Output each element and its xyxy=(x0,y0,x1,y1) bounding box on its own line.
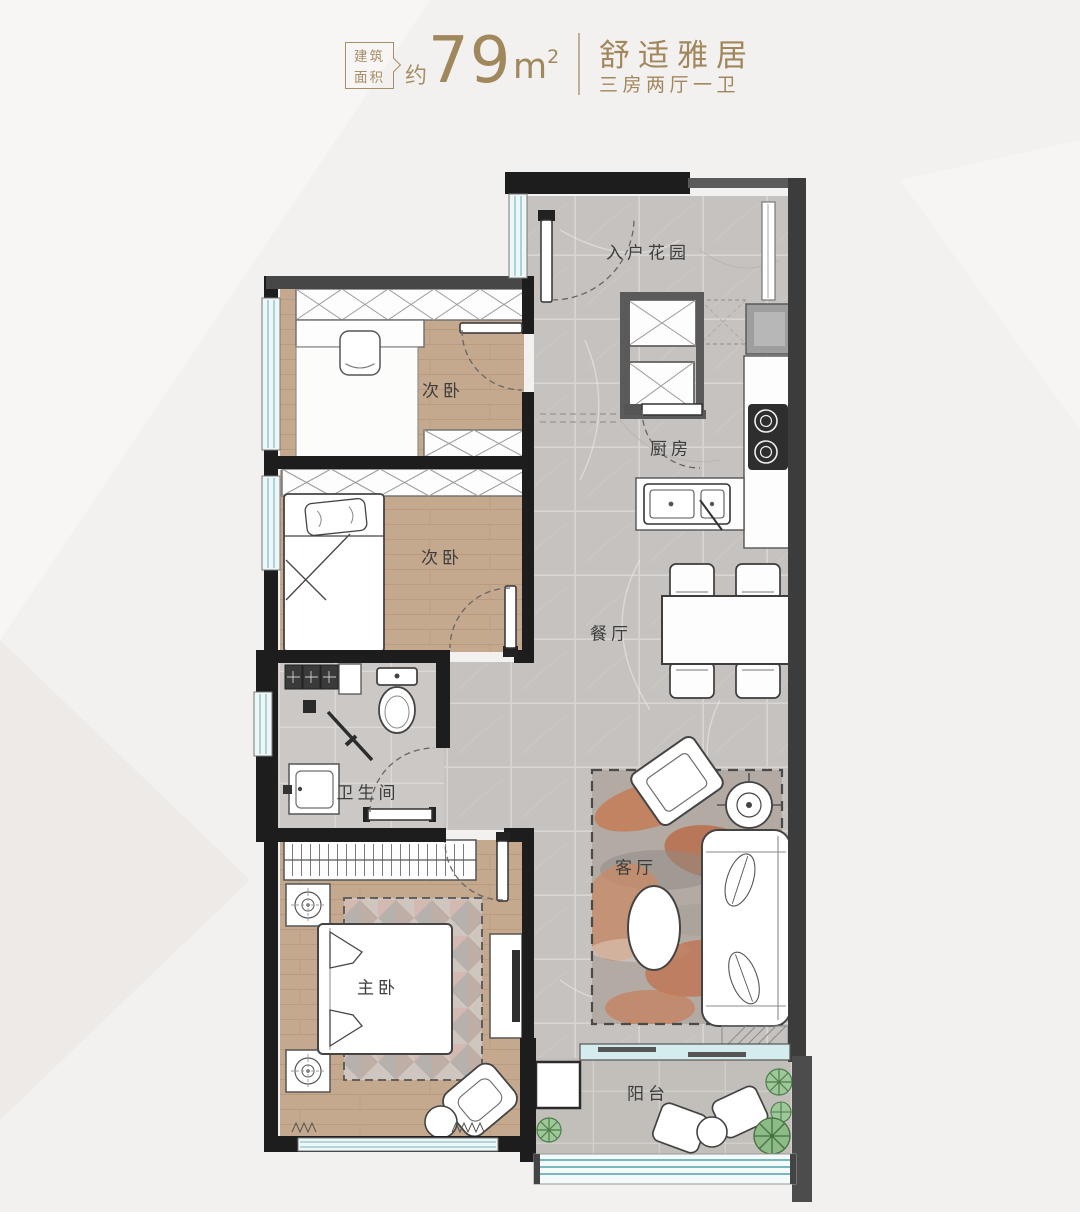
coffee-table xyxy=(628,886,680,970)
balcony-table xyxy=(697,1117,727,1147)
nightstand xyxy=(286,884,330,926)
dining-chair xyxy=(736,662,780,698)
dining-chair xyxy=(670,662,714,698)
page-subtitle: 三房两厅一卫 xyxy=(599,70,740,97)
area-approx: 约 xyxy=(405,58,427,90)
side-table xyxy=(425,1106,457,1138)
room-label-master-bedroom: 主卧 xyxy=(357,974,399,999)
cabinet xyxy=(424,430,524,457)
header: 建筑 面积 约 79 m2 舒适雅居 三房两厅一卫 xyxy=(0,0,1080,120)
room-label-balcony: 阳台 xyxy=(627,1080,669,1105)
tv xyxy=(512,950,520,1022)
bathroom-sink xyxy=(283,764,339,814)
area-badge-line2: 面积 xyxy=(346,68,393,89)
room-label-living-room: 客厅 xyxy=(615,854,657,879)
sliding-door xyxy=(580,1044,790,1060)
window xyxy=(762,202,775,300)
area-value: 79 xyxy=(428,24,511,98)
window xyxy=(509,194,527,278)
plant xyxy=(754,1118,790,1154)
partition xyxy=(339,664,361,694)
dining-chair xyxy=(670,564,714,600)
window xyxy=(298,1138,498,1151)
room-label-entry-garden: 入户花园 xyxy=(606,239,690,264)
page-title: 舒适雅居 xyxy=(599,30,755,75)
kitchen-sink xyxy=(644,484,730,530)
toilet xyxy=(377,668,417,733)
pillow xyxy=(304,498,367,536)
header-divider xyxy=(578,33,580,95)
nightstand xyxy=(286,1050,330,1092)
shower-head xyxy=(303,700,316,713)
plant xyxy=(766,1069,792,1095)
room-label-kitchen: 厨房 xyxy=(650,435,692,460)
dining-table xyxy=(662,596,792,664)
room-label-bathroom: 卫生间 xyxy=(337,779,400,804)
plant xyxy=(537,1118,561,1142)
washing-machine xyxy=(536,1062,580,1108)
area-unit: m2 xyxy=(513,46,559,87)
room-label-bedroom-middle: 次卧 xyxy=(421,544,463,569)
stove xyxy=(748,404,788,470)
area-exponent: 2 xyxy=(547,46,559,68)
wardrobe xyxy=(296,289,528,320)
room-label-dining-room: 餐厅 xyxy=(590,620,632,645)
window xyxy=(254,692,272,756)
sofa xyxy=(702,830,790,1026)
balcony-railing-window xyxy=(534,1154,796,1184)
floor-plan xyxy=(0,0,1080,1212)
floor-plan-page: 建筑 面积 约 79 m2 舒适雅居 三房两厅一卫 入户花园 次卧 厨房 次卧 … xyxy=(0,0,1080,1212)
area-badge: 建筑 面积 xyxy=(345,42,394,89)
window xyxy=(262,476,280,570)
room-label-bedroom-upper: 次卧 xyxy=(422,377,464,402)
window xyxy=(262,298,280,450)
dining-chair xyxy=(736,564,780,600)
